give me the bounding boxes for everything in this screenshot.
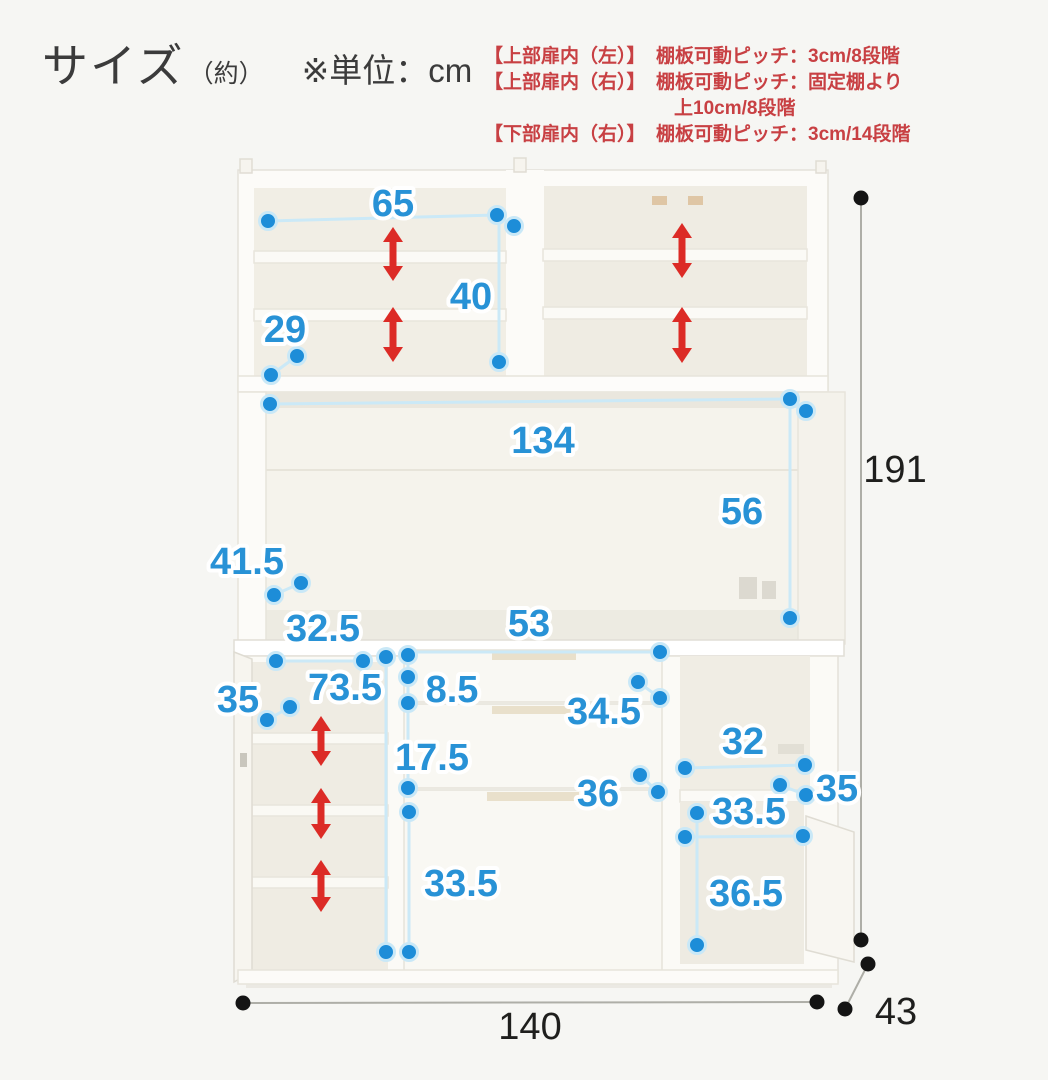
- top-tab: [240, 159, 252, 173]
- outlet: [739, 577, 757, 599]
- dimension-dot: [795, 828, 812, 845]
- dimension-label: 8.5: [426, 669, 479, 711]
- dimension-dot: [798, 403, 815, 420]
- dimension-dot: [263, 367, 280, 384]
- dimension-label: 191: [863, 449, 926, 491]
- dimension-label: 35: [217, 679, 259, 721]
- middle-left-panel: [238, 392, 266, 644]
- dimension-label: 34.5: [567, 691, 641, 733]
- adjustable-shelf-arrow: [318, 801, 325, 826]
- cabinet-base: [238, 970, 838, 984]
- cabinet-dimension-diagram: 6540291345641.532.573.5358.55334.517.536…: [0, 0, 1048, 1080]
- dimension-dot: [782, 610, 799, 627]
- dimension-label: 56: [721, 491, 763, 533]
- hutch-bottom-rail: [238, 376, 828, 392]
- dimension-dot: [689, 937, 706, 954]
- dimension-label: 33.5: [712, 791, 786, 833]
- dimension-label: 134: [511, 420, 574, 462]
- dimension-dot: [630, 674, 647, 691]
- adjustable-shelf-arrow: [318, 729, 325, 753]
- dimension-label: 33.5: [424, 863, 498, 905]
- dimension-dot: [378, 649, 395, 666]
- dimension-label: 140: [498, 1006, 561, 1048]
- shelf: [543, 307, 807, 319]
- dimension-dot: [400, 669, 417, 686]
- dimension-label: 53: [508, 603, 550, 645]
- door-hinge: [778, 744, 804, 754]
- dimension-dot: [689, 805, 706, 822]
- size-diagram-page: サイズ （約） ※単位：cm 【上部扉内（左）】棚板可動ピッチ：3cm/8段階【…: [0, 0, 1048, 1080]
- door-hinge: [652, 196, 667, 205]
- dimension-label: 73.5: [308, 667, 382, 709]
- adjustable-shelf-arrow: [679, 320, 686, 350]
- dimension-dot: [810, 995, 825, 1010]
- dimension-dot: [797, 757, 814, 774]
- top-tab: [514, 158, 526, 172]
- dimension-dot: [260, 213, 277, 230]
- open-door-right: [806, 816, 854, 962]
- dimension-dot: [798, 787, 815, 804]
- dimension-dot: [854, 933, 869, 948]
- dimension-dot: [491, 354, 508, 371]
- dimension-dot: [506, 218, 523, 235]
- dimension-dot: [293, 575, 310, 592]
- dimension-label: 36.5: [709, 873, 783, 915]
- dimension-dot: [782, 391, 799, 408]
- middle-right-panel: [798, 392, 845, 644]
- dimension-dot: [400, 695, 417, 712]
- adjustable-shelf-arrow: [390, 240, 397, 268]
- dimension-dot: [489, 207, 506, 224]
- drawer-handle: [487, 792, 579, 801]
- dimension-dot: [266, 587, 283, 604]
- dimension-label: 17.5: [395, 737, 469, 779]
- dimension-label: 32.5: [286, 608, 360, 650]
- adjustable-shelf-arrow: [679, 236, 686, 265]
- dimension-line: [845, 964, 868, 1009]
- door-hinge: [688, 196, 703, 205]
- dimension-dot: [861, 957, 876, 972]
- adjustable-shelf-arrow: [390, 320, 397, 349]
- dimension-line: [685, 836, 803, 837]
- outlet: [762, 581, 776, 599]
- hutch-center-post: [506, 170, 544, 392]
- dimension-label: 40: [450, 276, 492, 318]
- dimension-dot: [378, 944, 395, 961]
- door-hinge: [240, 753, 247, 767]
- shelf: [543, 249, 807, 261]
- dimension-dot: [401, 804, 418, 821]
- dimension-dot: [632, 767, 649, 784]
- dimension-label: 35: [816, 768, 858, 810]
- dimension-dot: [838, 1002, 853, 1017]
- dimension-dot: [259, 712, 276, 729]
- dimension-dot: [652, 690, 669, 707]
- dimension-dot: [282, 699, 299, 716]
- dimension-dot: [268, 653, 285, 670]
- dimension-dot: [236, 996, 251, 1011]
- dimension-dot: [650, 784, 667, 801]
- shelf: [254, 251, 506, 263]
- dimension-dot: [400, 647, 417, 664]
- dimension-dot: [652, 644, 669, 661]
- dimension-dot: [677, 829, 694, 846]
- dimension-label: 65: [372, 183, 414, 225]
- dimension-label: 29: [264, 309, 306, 351]
- drawer-handle: [492, 706, 576, 714]
- dimension-dot: [400, 780, 417, 797]
- dimension-label: 43: [875, 991, 917, 1033]
- dimension-label: 32: [722, 721, 764, 763]
- dimension-dot: [401, 944, 418, 961]
- base-shadow: [246, 984, 832, 988]
- dimension-label: 41.5: [210, 541, 284, 583]
- dimension-dot: [677, 760, 694, 777]
- adjustable-shelf-arrow: [318, 873, 325, 899]
- dimension-label: 36: [577, 773, 619, 815]
- dimension-line: [243, 1002, 817, 1003]
- top-tab: [816, 161, 826, 173]
- dimension-dot: [262, 396, 279, 413]
- dimension-dot: [854, 191, 869, 206]
